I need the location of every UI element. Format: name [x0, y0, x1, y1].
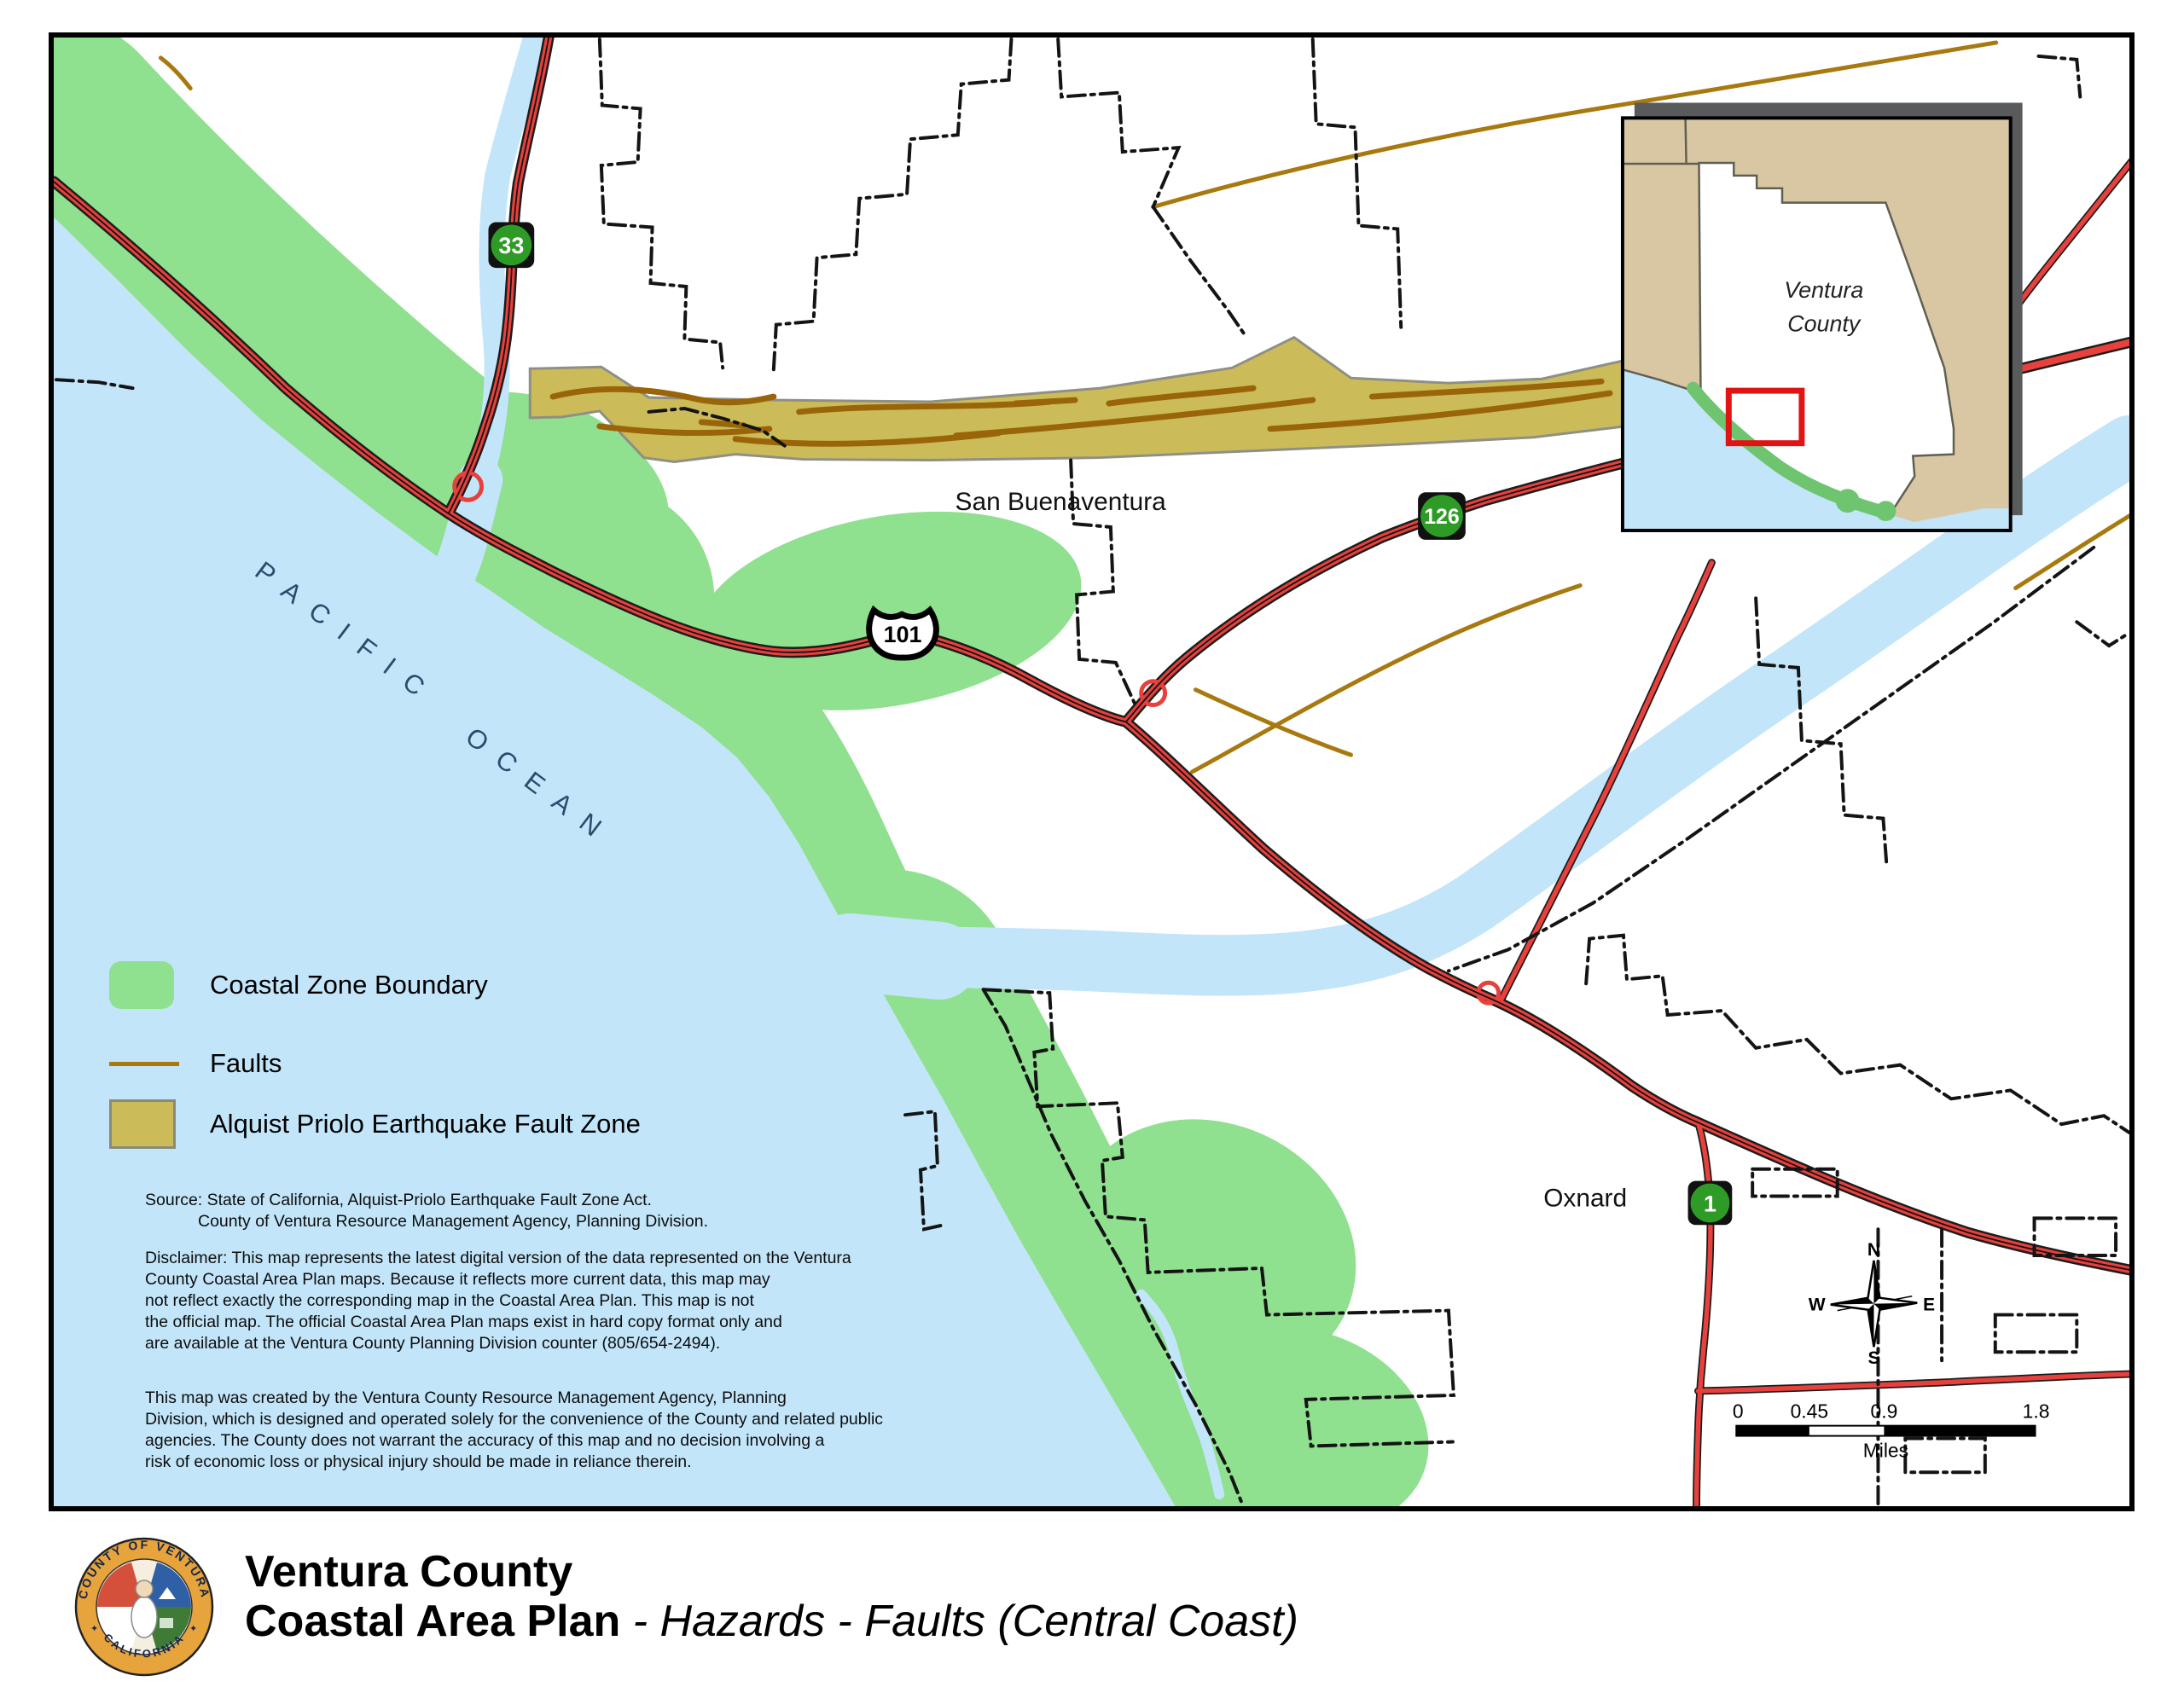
page: { "colors": { "ocean": "#C2E5F9", "coast… — [0, 0, 2184, 1687]
source-note: Source: State of California, Alquist-Pri… — [145, 1190, 708, 1232]
svg-text:126: 126 — [1424, 506, 1459, 529]
disclaimer-note: Disclaimer: This map represents the late… — [145, 1248, 851, 1354]
map-title-line1: Ventura County — [245, 1547, 1298, 1597]
svg-text:33: 33 — [498, 233, 524, 258]
scale-unit: Miles — [1863, 1439, 1908, 1461]
legend-label: Alquist Priolo Earthquake Fault Zone — [210, 1109, 641, 1139]
inset-label-line1: Ventura — [1784, 277, 1863, 303]
legend-item-ap-zone: Alquist Priolo Earthquake Fault Zone — [109, 1099, 641, 1149]
svg-text:0: 0 — [1733, 1400, 1744, 1423]
svg-text:0.9: 0.9 — [1871, 1400, 1898, 1423]
route-1-shield: 1 — [1688, 1181, 1733, 1226]
ap-zone-swatch — [109, 1099, 176, 1149]
legend-item-coastal-zone: Coastal Zone Boundary — [109, 961, 488, 1009]
svg-text:101: 101 — [884, 622, 922, 647]
legend-label: Coastal Zone Boundary — [210, 970, 488, 1000]
created-note: This map was created by the Ventura Coun… — [145, 1388, 883, 1473]
coastal-zone-swatch — [109, 961, 174, 1009]
fault-line-swatch — [109, 1062, 179, 1066]
seal-star-icon: ✦ — [90, 1624, 98, 1634]
svg-text:1: 1 — [1704, 1191, 1716, 1216]
title-block: Ventura County Coastal Area Plan - Hazar… — [245, 1547, 1298, 1646]
map-title-line2: Coastal Area Plan - Hazards - Faults (Ce… — [245, 1597, 1298, 1646]
route-33-shield: 33 — [488, 222, 534, 268]
svg-text:1.8: 1.8 — [2023, 1400, 2050, 1423]
svg-text:0.45: 0.45 — [1791, 1400, 1829, 1423]
legend-label: Faults — [210, 1048, 282, 1079]
seal-star-icon: ✦ — [189, 1624, 197, 1634]
legend-item-faults: Faults — [109, 1047, 282, 1080]
route-126-shield: 126 — [1418, 492, 1466, 540]
inset-label-line2: County — [1787, 311, 1862, 337]
label-san-buenaventura: San Buenaventura — [955, 488, 1167, 516]
route-101-shield: 101 — [869, 610, 937, 658]
compass-s: S — [1868, 1348, 1880, 1368]
compass-w: W — [1809, 1296, 1826, 1315]
compass-n: N — [1867, 1240, 1880, 1260]
county-seal: COUNTY OF VENTURA CALIFORNIA ✦ ✦ — [72, 1534, 217, 1679]
inset-map: Ventura County — [1623, 102, 2023, 530]
label-oxnard: Oxnard — [1543, 1184, 1627, 1212]
compass-e: E — [1923, 1296, 1935, 1315]
